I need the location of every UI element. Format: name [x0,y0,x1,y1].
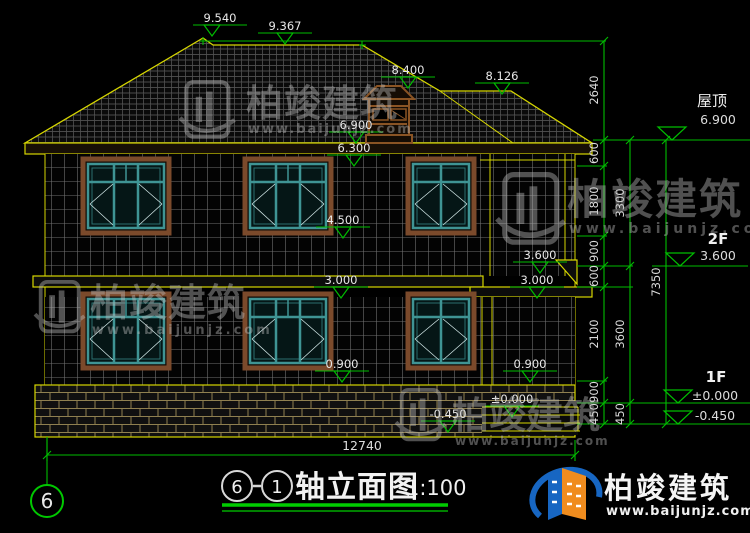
dim-value: 600 [587,142,601,164]
dim-value: 900 [587,240,601,262]
title-axis-start: 6 [231,477,242,498]
right-level-ground: -0.450 [664,408,735,424]
logo-building-blue [548,468,562,520]
level-marker-ridge-low: 8.126 [475,69,529,94]
dim-value: 2640 [587,75,601,104]
dim-value: 600 [587,265,601,287]
level-value: 8.126 [486,69,519,83]
watermark-brand: 柏竣建筑 [452,394,600,437]
watermark-brand: 柏竣建筑 [246,82,398,125]
porch-roof-slab [470,287,592,297]
floor-label: 1F [706,368,727,386]
axis-bubble-number: 6 [41,489,54,513]
level-value: ±0.000 [692,388,738,403]
watermark-site: www.baijunjz.com [569,221,750,237]
watermark-brand: 柏竣建筑 [567,175,743,224]
dim-value: 3600 [613,319,627,348]
level-value: 3.000 [521,273,554,287]
window-2f-right [408,159,474,233]
level-value: 0.900 [326,357,359,371]
title-axis-end: 1 [271,477,282,498]
brand-logo: 柏竣建筑 www.baijunjz.com [532,468,750,520]
watermark-site: www.baijunjz.com [92,323,273,338]
dim-value: 450 [613,403,627,425]
title-block: 6 1 轴立面图 1:100 [222,470,467,511]
logo-building-orange [562,468,586,520]
level-value: 4.500 [327,213,360,227]
logo-brand-text: 柏竣建筑 [604,471,732,505]
level-value: 3.600 [700,248,736,263]
dim-value: 2100 [587,319,601,348]
eave-fascia-band [25,143,592,154]
logo-website-text: www.baijunjz.com [606,504,750,519]
level-value: 6.300 [338,141,371,155]
level-value: 8.400 [392,63,425,77]
level-marker-roof-peak: 9.540 [193,11,247,36]
drawing-scale: 1:100 [406,476,467,500]
drawing-title: 轴立面图 [295,470,419,505]
watermark-brand: 柏竣建筑 [90,281,246,325]
watermark-site: www.baijunjz.com [455,434,610,448]
level-value: 6.900 [700,112,736,127]
elevation-drawing-canvas: 9.540 9.367 8.400 8.126 6.900 6.300 4.50… [0,0,750,533]
level-value: -0.450 [695,408,735,423]
floor-label: 屋顶 [697,92,727,110]
watermark-site: www.baijunjz.com [248,122,413,137]
level-value: 3.000 [325,273,358,287]
window-1f-right [408,294,474,368]
level-value: 3.600 [524,248,557,262]
window-2f-left [83,159,169,233]
level-value: 0.900 [514,357,547,371]
level-marker-roof-ridge: 9.367 [258,19,312,44]
axis-bubble-6: 6 [31,437,63,517]
level-value: 9.367 [269,19,302,33]
dim-value: 7350 [649,267,663,296]
window-2f-middle [245,159,331,233]
level-value: 9.540 [204,11,237,25]
elevation-svg: 9.540 9.367 8.400 8.126 6.900 6.300 4.50… [0,0,750,533]
right-level-roof: 屋顶 6.900 [658,92,736,140]
total-width-value: 12740 [342,438,382,453]
right-level-1f: 1F ±0.000 [664,368,738,403]
